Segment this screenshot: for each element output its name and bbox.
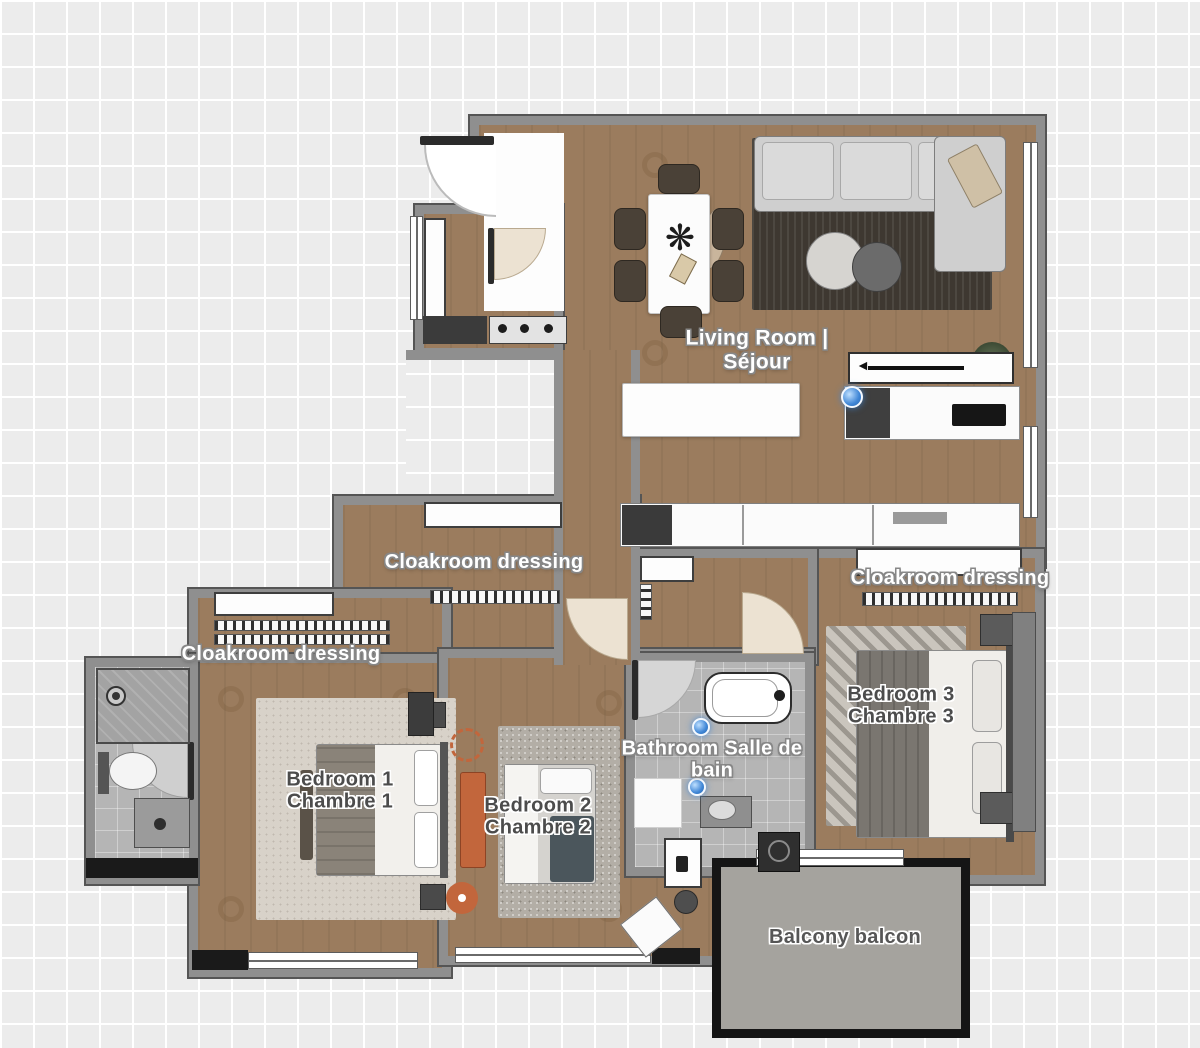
ceiling-light: [596, 690, 622, 716]
shower[interactable]: [96, 668, 190, 744]
entry-cabinet-dark[interactable]: [423, 316, 487, 344]
headboard: [440, 742, 448, 878]
label-cloakroom-middle: Cloakroom dressing: [385, 551, 584, 573]
window[interactable]: [410, 216, 423, 320]
bath-mat: [634, 778, 682, 828]
wall-segment: [86, 858, 198, 878]
ceiling-light: [218, 686, 244, 712]
window[interactable]: [1023, 142, 1038, 368]
camera-marker[interactable]: [841, 386, 863, 408]
desk-chair[interactable]: [674, 890, 698, 914]
bed-bench[interactable]: [460, 772, 486, 868]
nightstand[interactable]: [420, 884, 446, 910]
ceiling-light: [642, 340, 668, 366]
tv-unit: [868, 366, 964, 370]
toilet[interactable]: [109, 752, 157, 790]
sofa-cushion: [762, 142, 834, 200]
kitchen-island[interactable]: [622, 383, 800, 437]
camera-marker[interactable]: [692, 718, 710, 736]
bath-faucet: [774, 690, 785, 701]
dining-chair[interactable]: [712, 208, 744, 250]
wardrobe-divider: [872, 505, 874, 545]
sink-basin: [708, 800, 736, 820]
toilet-tank: [98, 752, 109, 794]
entry-door-leaf[interactable]: [420, 136, 494, 145]
sink-drain: [154, 818, 166, 830]
appliance-knob: [498, 324, 507, 333]
label-bedroom-1: Bedroom 1 Chambre 1: [286, 769, 393, 814]
dining-chair[interactable]: [614, 260, 646, 302]
desk-lamp: [676, 856, 688, 872]
shower-room-door-leaf[interactable]: [188, 742, 194, 800]
dresser[interactable]: [408, 692, 434, 736]
pillow: [972, 660, 1002, 732]
wardrobe-dark-end: [622, 505, 672, 545]
cooktop[interactable]: [952, 404, 1006, 426]
clothes-rail[interactable]: [430, 590, 560, 604]
ceiling-light: [218, 896, 244, 922]
table-plant: ❋: [660, 218, 700, 258]
appliance-knob: [520, 324, 529, 333]
coffee-table[interactable]: [852, 242, 902, 292]
washer-door: [768, 840, 790, 862]
clothes-rack[interactable]: [640, 556, 694, 582]
appliance-knob: [544, 324, 553, 333]
sofa-cushion: [840, 142, 912, 200]
pouf-dot: [458, 894, 466, 902]
wardrobe-divider: [742, 505, 744, 545]
wall-segment: [652, 948, 700, 964]
clothes-rack[interactable]: [424, 502, 562, 528]
wall-segment: [192, 950, 248, 970]
pillow: [414, 750, 438, 806]
bed-blanket: [857, 651, 929, 837]
bathtub-basin: [712, 679, 778, 717]
window[interactable]: [455, 947, 651, 963]
label-cloakroom-left: Cloakroom dressing: [182, 643, 381, 665]
label-bedroom-2: Bedroom 2 Chambre 2: [484, 795, 591, 840]
wardrobe-inset: [893, 512, 947, 524]
shower-drain: [112, 692, 120, 700]
label-bathroom: Bathroom Salle de bain: [622, 738, 803, 783]
clothes-rack[interactable]: [214, 592, 334, 616]
pouf[interactable]: [450, 728, 484, 762]
window[interactable]: [248, 952, 418, 969]
clothes-rail[interactable]: [640, 584, 652, 620]
floor-plan-canvas: ❋ ◄: [0, 0, 1200, 1048]
pillow: [540, 768, 592, 794]
clothes-rail[interactable]: [862, 592, 1018, 606]
label-balcony: Balcony balcon: [769, 926, 921, 948]
wardrobe-row[interactable]: [620, 503, 1020, 547]
dining-chair[interactable]: [712, 260, 744, 302]
window[interactable]: [1023, 426, 1038, 518]
entry-floor-tile: [484, 133, 564, 311]
clothes-rail[interactable]: [214, 620, 390, 631]
entry-closet[interactable]: [424, 218, 446, 318]
dining-chair[interactable]: [658, 164, 700, 194]
dining-chair[interactable]: [614, 208, 646, 250]
label-living-room: Living Room | Séjour: [686, 326, 829, 373]
label-cloakroom-right: Cloakroom dressing: [851, 567, 1050, 589]
tv-arrow: ◄: [856, 358, 870, 372]
pillow: [414, 812, 438, 868]
label-bedroom-3: Bedroom 3 Chambre 3: [847, 684, 954, 729]
wardrobe[interactable]: [1012, 612, 1036, 832]
